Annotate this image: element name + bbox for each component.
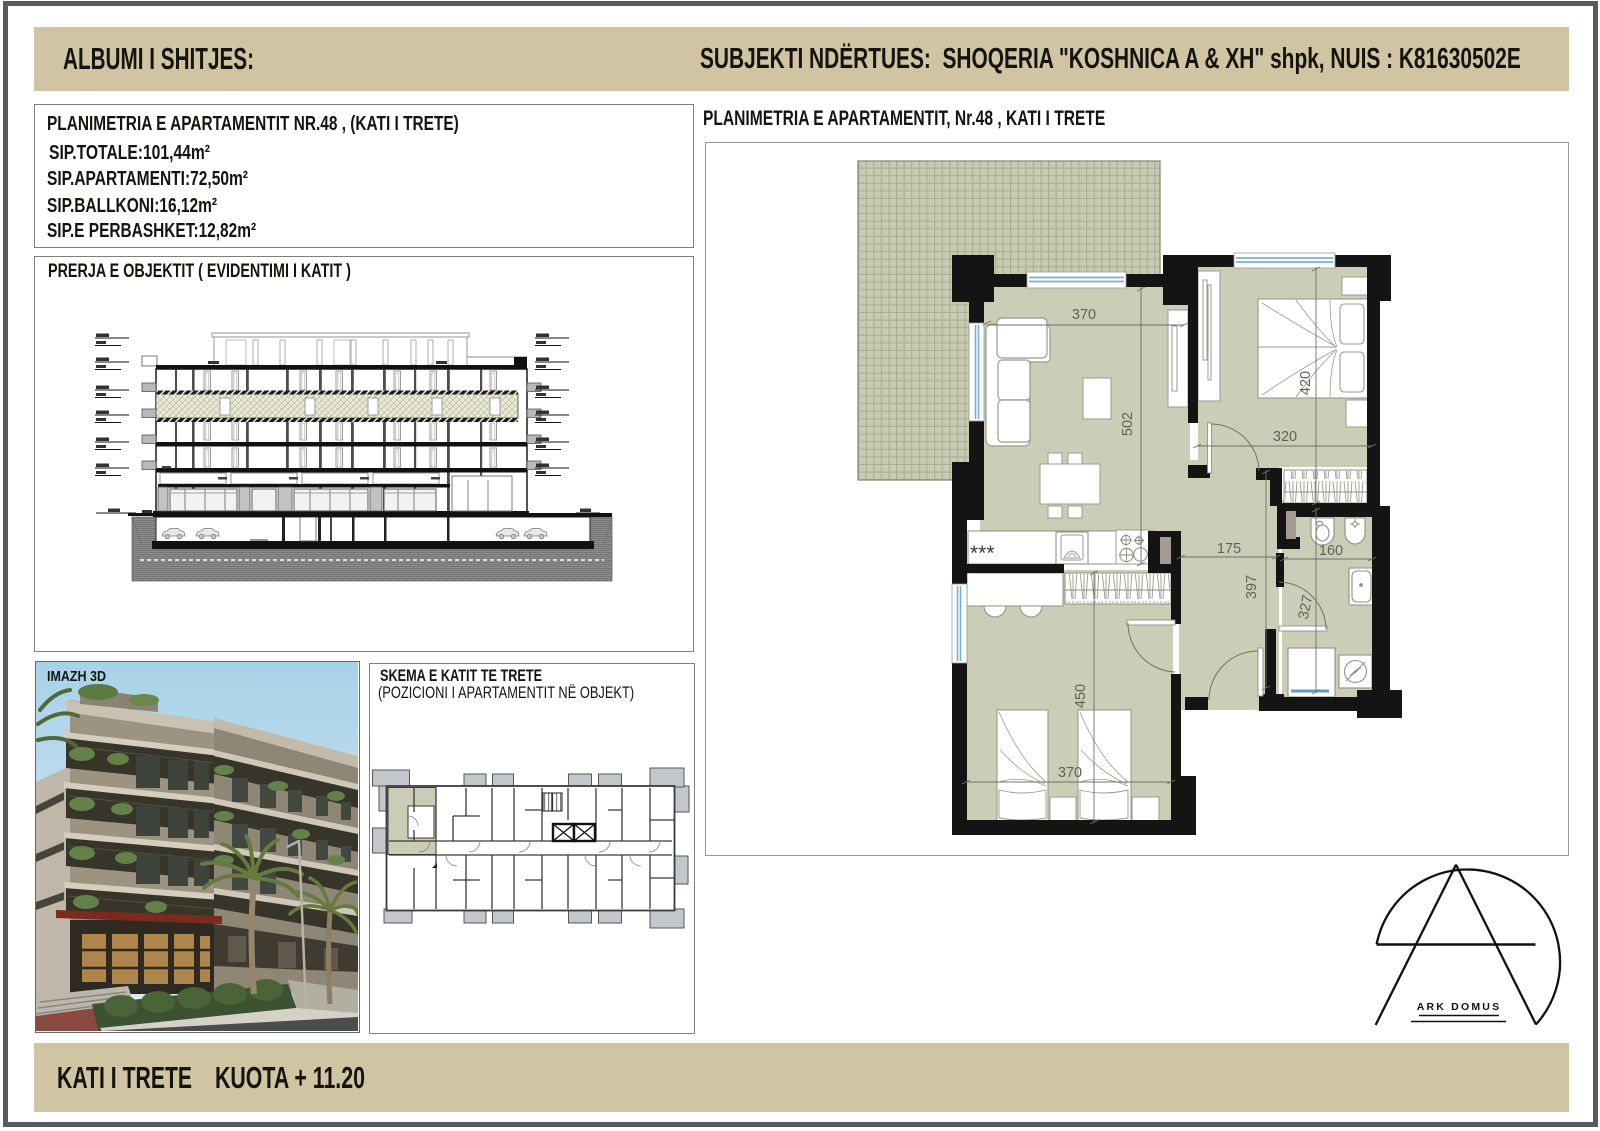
svg-text:320: 320 <box>1273 429 1297 445</box>
svg-text:370: 370 <box>1058 765 1082 781</box>
svg-text:420: 420 <box>1298 371 1314 395</box>
svg-text:450: 450 <box>1073 684 1089 708</box>
svg-text:397: 397 <box>1244 575 1260 599</box>
svg-text:ARK DOMUS: ARK DOMUS <box>1417 1001 1502 1013</box>
svg-text:502: 502 <box>1120 412 1136 436</box>
svg-text:370: 370 <box>1072 307 1096 323</box>
svg-text:175: 175 <box>1217 541 1241 557</box>
svg-text:***: *** <box>970 542 995 565</box>
svg-text:160: 160 <box>1319 543 1343 559</box>
